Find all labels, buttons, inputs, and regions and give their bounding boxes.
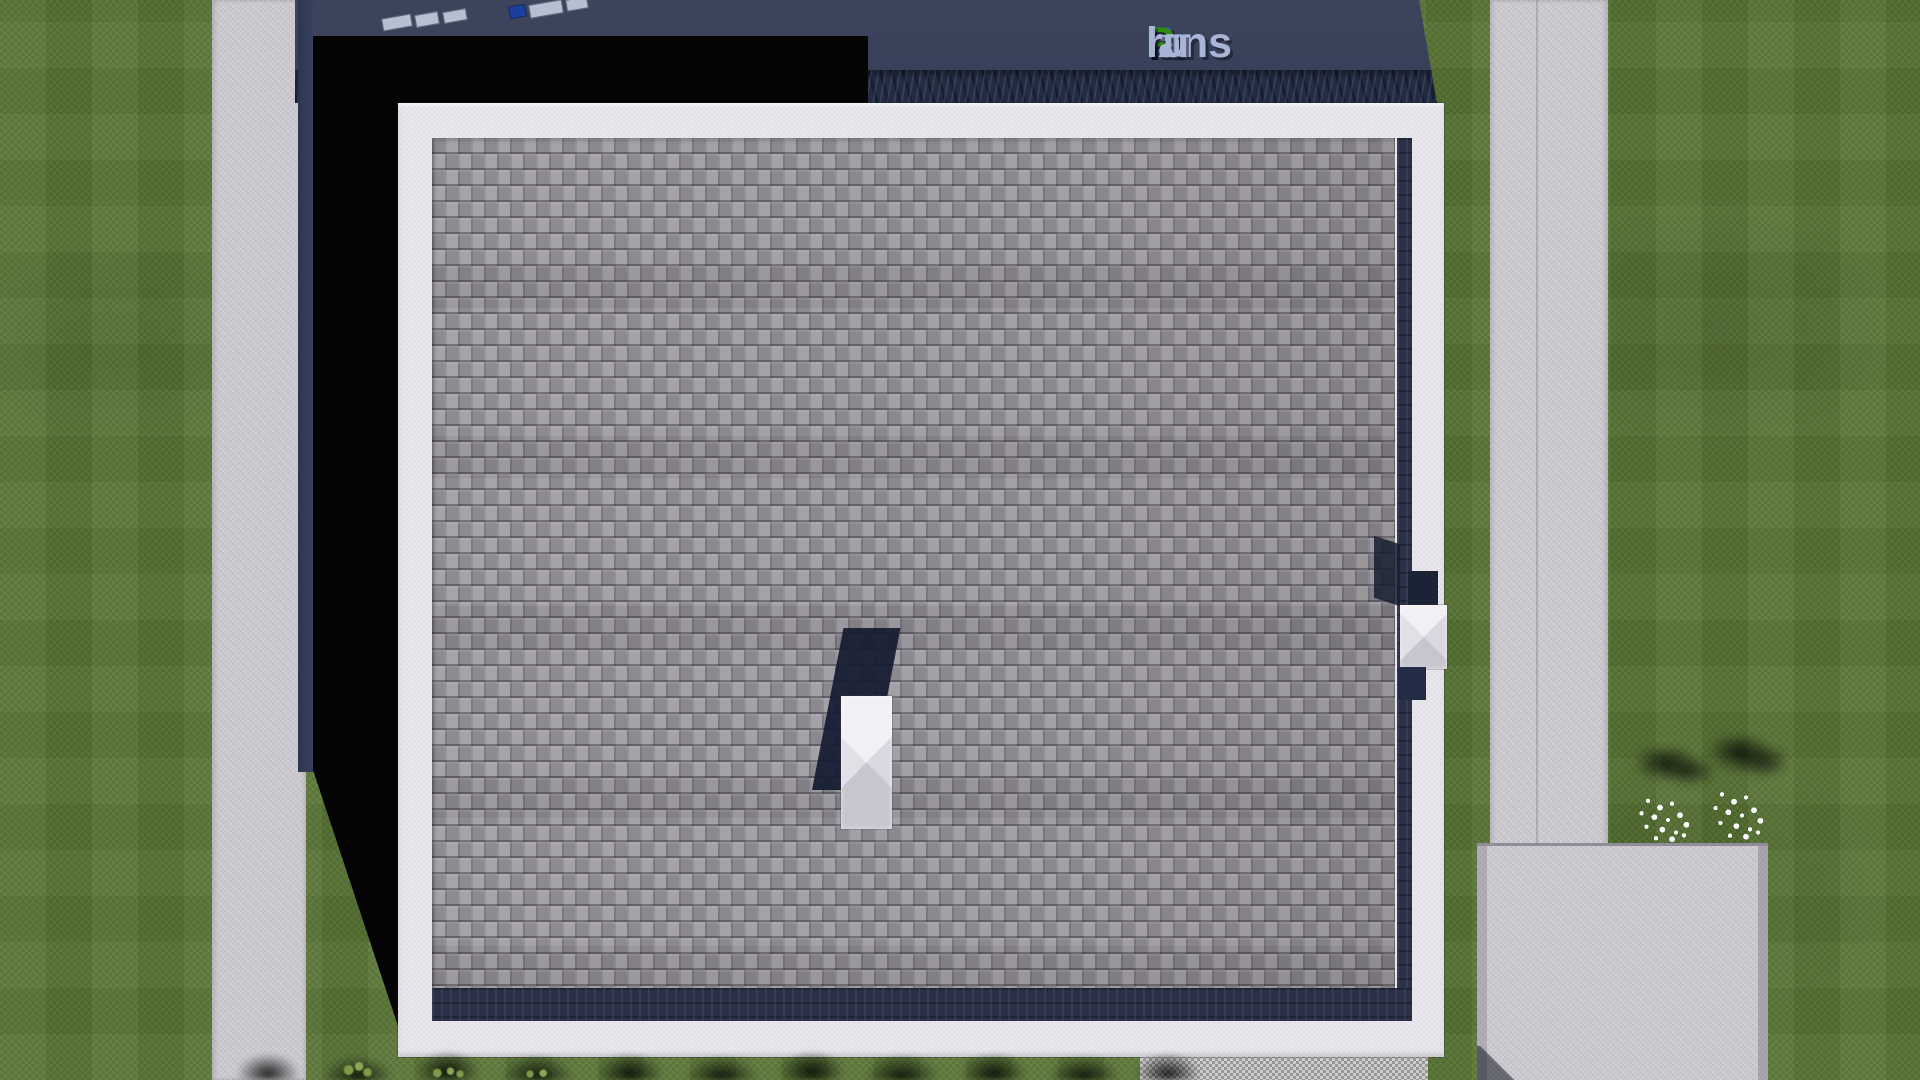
dormer-shadow bbox=[1398, 667, 1426, 700]
flower-bush bbox=[1632, 748, 1712, 844]
side-dormer-cap bbox=[1400, 605, 1447, 669]
flower-blooms bbox=[1632, 748, 1712, 844]
left-walkway bbox=[212, 0, 306, 1080]
bush bbox=[516, 1066, 556, 1080]
pad-corner-shadow bbox=[1477, 1046, 1523, 1080]
roof-vent-dark bbox=[1408, 571, 1438, 607]
watermark-letters: ru bbox=[1146, 20, 1189, 66]
eave-shadow-patch bbox=[1374, 536, 1400, 606]
chimney bbox=[841, 696, 892, 829]
tree-shadow-row bbox=[238, 1012, 1208, 1080]
roof-shingle-field bbox=[432, 138, 1395, 988]
walkway-edge-shadow bbox=[298, 0, 315, 772]
right-walkway bbox=[1490, 0, 1608, 846]
aerial-render-viewport: FixPlans.ru bbox=[0, 0, 1920, 1080]
roof-white-fascia bbox=[398, 103, 1444, 1057]
driveway-pad bbox=[1477, 843, 1768, 1080]
walkway-joint-line bbox=[1536, 0, 1538, 846]
bush bbox=[336, 1058, 378, 1080]
flower-bush bbox=[1706, 736, 1786, 842]
bush bbox=[424, 1064, 468, 1080]
flower-blooms bbox=[1706, 736, 1786, 842]
